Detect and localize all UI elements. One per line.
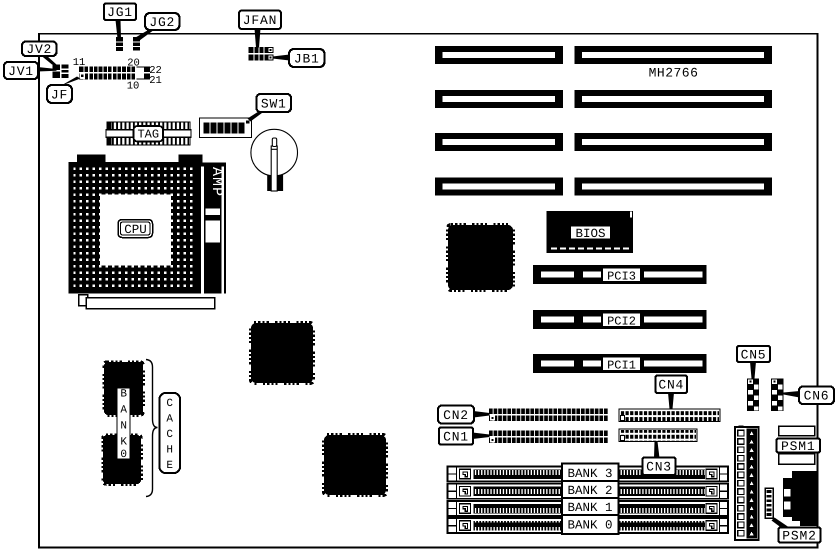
svg-text:CN3: CN3 bbox=[646, 460, 672, 475]
svg-text:JG1: JG1 bbox=[107, 5, 133, 20]
svg-text:CN5: CN5 bbox=[741, 347, 767, 362]
svg-text:BANK 0: BANK 0 bbox=[567, 518, 612, 532]
svg-text:N: N bbox=[120, 421, 127, 433]
svg-text:PSM1: PSM1 bbox=[781, 439, 815, 454]
svg-text:H: H bbox=[166, 445, 173, 457]
svg-text:E: E bbox=[166, 460, 173, 472]
svg-text:AMP: AMP bbox=[208, 167, 225, 197]
svg-text:CN4: CN4 bbox=[658, 378, 684, 393]
svg-text:10: 10 bbox=[127, 81, 140, 93]
svg-text:PCI3: PCI3 bbox=[607, 270, 636, 284]
svg-text:TAG: TAG bbox=[137, 128, 159, 142]
svg-text:BIOS: BIOS bbox=[575, 227, 605, 241]
svg-text:CN1: CN1 bbox=[443, 429, 469, 444]
svg-text:BANK 1: BANK 1 bbox=[567, 501, 612, 515]
svg-text:C: C bbox=[166, 398, 173, 410]
svg-text:SW1: SW1 bbox=[261, 96, 287, 111]
svg-text:20: 20 bbox=[127, 58, 140, 70]
svg-text:PCI2: PCI2 bbox=[607, 315, 636, 329]
svg-text:JV2: JV2 bbox=[26, 42, 52, 57]
svg-text:A: A bbox=[166, 414, 173, 426]
svg-text:PSM2: PSM2 bbox=[782, 528, 816, 543]
svg-text:JG2: JG2 bbox=[149, 15, 175, 30]
svg-text:JFAN: JFAN bbox=[243, 13, 277, 28]
svg-text:BANK 2: BANK 2 bbox=[567, 484, 612, 498]
svg-text:CN6: CN6 bbox=[804, 389, 830, 404]
svg-text:PCI1: PCI1 bbox=[607, 359, 636, 373]
svg-text:BANK 3: BANK 3 bbox=[567, 467, 612, 481]
svg-text:0: 0 bbox=[120, 449, 127, 461]
svg-text:C: C bbox=[166, 429, 173, 441]
svg-text:JB1: JB1 bbox=[294, 51, 320, 66]
svg-text:JF: JF bbox=[51, 87, 68, 102]
svg-text:B: B bbox=[120, 389, 127, 401]
svg-text:CPU: CPU bbox=[124, 223, 147, 237]
svg-text:K: K bbox=[120, 437, 127, 449]
svg-text:A: A bbox=[120, 405, 127, 417]
svg-text:JV1: JV1 bbox=[8, 64, 34, 79]
svg-text:11: 11 bbox=[73, 57, 86, 69]
svg-text:21: 21 bbox=[149, 75, 162, 87]
svg-text:CN2: CN2 bbox=[443, 408, 469, 423]
svg-text:MH2766: MH2766 bbox=[649, 66, 699, 81]
